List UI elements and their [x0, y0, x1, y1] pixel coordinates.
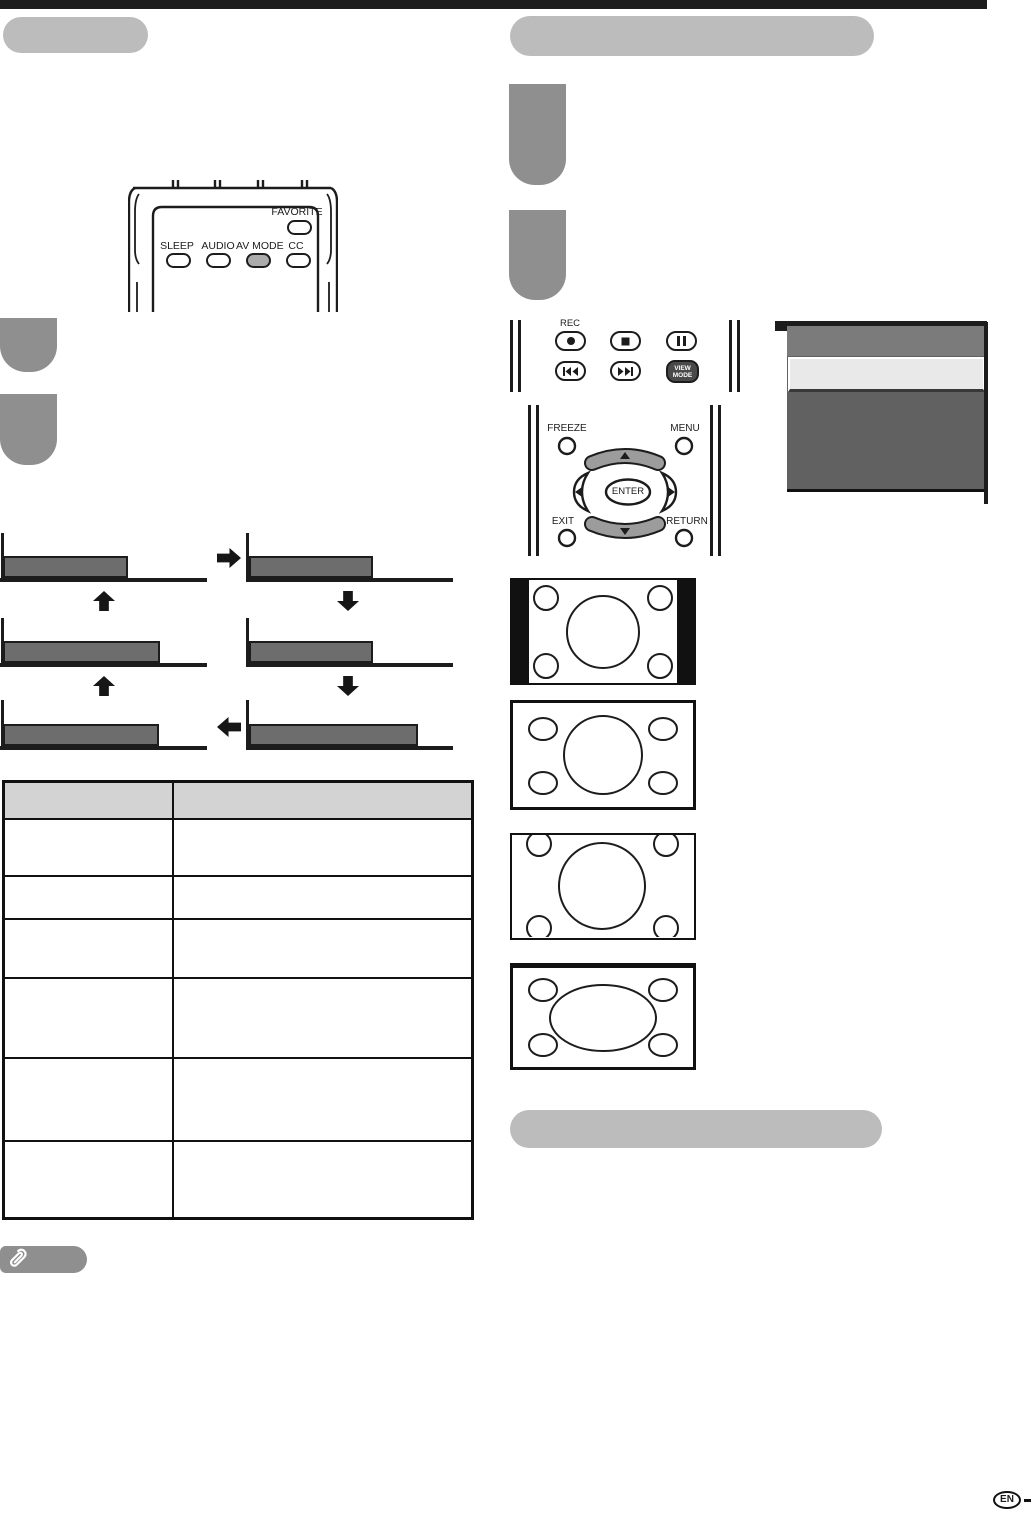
remote-edge-line [518, 320, 521, 392]
favorite-label: FAVORITE [271, 207, 323, 217]
skip-back-button [555, 361, 586, 381]
table-cell [173, 1058, 473, 1141]
table-cell [173, 1141, 473, 1219]
table-row [4, 1141, 473, 1219]
up-arrow-button [592, 452, 658, 463]
language-badge-text: EN [1000, 1495, 1014, 1505]
top-rule-bar [0, 0, 987, 9]
remote-edge-line [729, 320, 732, 392]
table-row [4, 978, 473, 1059]
osd-menu-body [787, 326, 984, 492]
audio-label: AUDIO [199, 241, 237, 251]
osd-menu-right-line [984, 322, 988, 504]
screen-pattern [513, 703, 693, 807]
right-arrow-button [662, 473, 676, 511]
menu-button [676, 438, 692, 454]
remote-edge-line [737, 320, 740, 392]
favorite-button [287, 220, 312, 235]
osd-menu-header-band [787, 326, 984, 356]
view-mode-button-label: VIEW [674, 365, 691, 372]
view-mode-screen-stretch [510, 963, 696, 1070]
skip-forward-button [610, 361, 641, 381]
sleep-button [166, 253, 191, 268]
step-block-right-1 [509, 84, 566, 185]
left-arrow-button [574, 473, 588, 511]
view-mode-button-label: MODE [673, 372, 693, 379]
step-block-1 [0, 318, 57, 372]
step-block-right-2 [509, 210, 566, 300]
table-cell [4, 1058, 174, 1141]
screen-pattern [529, 580, 677, 683]
skip-back-icon [563, 367, 578, 376]
flow-bar [249, 556, 373, 578]
table-cell [173, 876, 473, 919]
section-title-pill-left [3, 17, 148, 53]
flow-baseline [246, 746, 453, 750]
record-icon [566, 336, 576, 346]
arrow-up-icon [93, 676, 115, 696]
table-cell [173, 919, 473, 977]
screen-pattern [513, 968, 693, 1067]
sleep-label: SLEEP [159, 241, 195, 251]
pause-icon [677, 336, 686, 346]
arrow-up-icon [93, 591, 115, 611]
table-cell [4, 919, 174, 977]
cc-button [286, 253, 311, 268]
table-cell [4, 876, 174, 919]
view-mode-screen-sstretch [510, 700, 696, 810]
screen-picture-area [529, 580, 677, 683]
osd-menu-highlight-row [788, 357, 985, 392]
flow-bar [249, 641, 373, 663]
table-cell [4, 819, 174, 876]
section-title-pill-bottom [510, 1110, 882, 1148]
screen-pattern [512, 835, 693, 937]
manual-page: FAVORITE SLEEP AUDIO AV MODE CC [0, 0, 1031, 1514]
av-mode-table [2, 780, 474, 1220]
flow-bar [3, 556, 128, 578]
enter-label: ENTER [606, 487, 650, 497]
pause-button [666, 331, 697, 351]
freeze-button [559, 438, 575, 454]
rec-label: REC [550, 319, 590, 329]
view-mode-screen-sidebar [510, 578, 696, 685]
table-header-row [4, 782, 473, 819]
table-row [4, 876, 473, 919]
stop-icon [621, 337, 630, 346]
remote-edge-line [510, 320, 513, 392]
record-button [555, 331, 586, 351]
page-number-dash [1024, 1499, 1031, 1502]
table-header-cell [173, 782, 473, 819]
flow-baseline [0, 746, 207, 750]
exit-button [559, 530, 575, 546]
flow-bar [3, 641, 160, 663]
flow-bar [3, 724, 159, 746]
osd-menu-top-bar-notch [775, 321, 787, 331]
view-mode-button: VIEW MODE [666, 360, 699, 383]
note-pill [0, 1246, 87, 1273]
paperclip-icon [4, 1246, 30, 1272]
table-cell [173, 978, 473, 1059]
flow-baseline [246, 578, 453, 582]
stop-button [610, 331, 641, 351]
arrow-down-icon [337, 591, 359, 611]
remote-edge-line [536, 405, 539, 556]
return-button [676, 530, 692, 546]
table-row [4, 919, 473, 977]
arrow-right-icon [217, 548, 241, 568]
flow-baseline [0, 663, 207, 667]
arrow-down-icon [337, 676, 359, 696]
down-arrow-button [592, 524, 658, 535]
flow-baseline [0, 578, 207, 582]
flow-bar [249, 724, 418, 746]
av-mode-button-highlighted [246, 253, 271, 268]
remote-edge-line [718, 405, 721, 556]
table-row [4, 819, 473, 876]
language-badge: EN [993, 1491, 1021, 1509]
table-cell [4, 1141, 174, 1219]
view-mode-screen-zoom [510, 833, 696, 940]
cc-label: CC [282, 241, 310, 251]
audio-button [206, 253, 231, 268]
arrow-left-icon [217, 717, 241, 737]
av-mode-label: AV MODE [236, 241, 282, 251]
skip-forward-icon [618, 367, 633, 376]
table-cell [4, 978, 174, 1059]
step-block-2 [0, 394, 57, 465]
table-header-cell [4, 782, 174, 819]
section-title-pill-right [510, 16, 874, 56]
table-cell [173, 819, 473, 876]
remote-edge-line [528, 405, 531, 556]
flow-baseline [246, 663, 453, 667]
table-row [4, 1058, 473, 1141]
